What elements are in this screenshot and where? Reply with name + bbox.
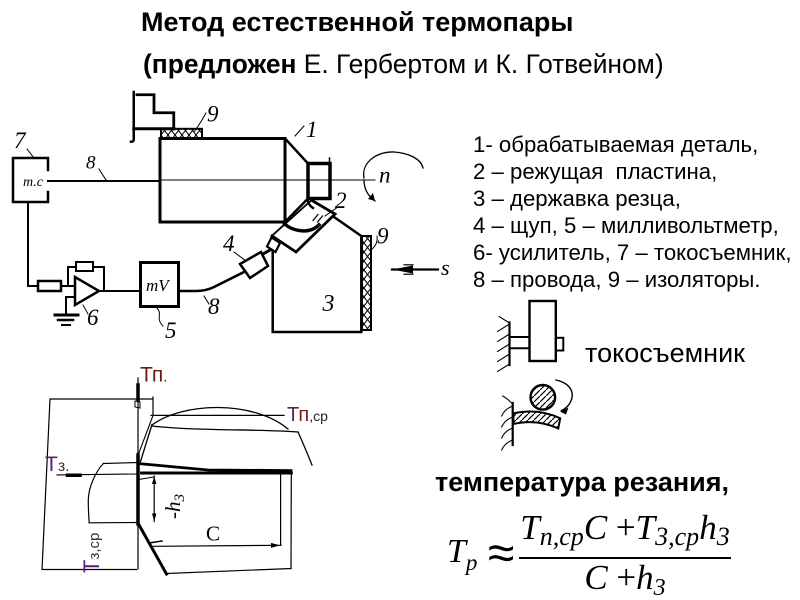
svg-text:2: 2	[335, 188, 347, 213]
svg-text:1: 1	[306, 117, 318, 142]
svg-text:9: 9	[207, 102, 219, 127]
svg-text:-h3: -h3	[161, 494, 188, 519]
svg-text:mV: mV	[146, 276, 171, 295]
svg-text:8: 8	[208, 294, 220, 319]
svg-text:s: s	[441, 255, 450, 280]
svg-text:т.с: т.с	[23, 175, 44, 190]
svg-text:C: C	[206, 522, 220, 546]
svg-text:Тп,ср: Тп,ср	[287, 404, 328, 426]
svg-text:9: 9	[377, 224, 389, 249]
svg-text:8: 8	[86, 153, 96, 174]
svg-text:Тп.: Тп.	[140, 364, 167, 387]
svg-text:5: 5	[165, 318, 177, 343]
svg-text:n: n	[379, 163, 391, 188]
svg-text:6: 6	[87, 305, 99, 330]
svg-text:7: 7	[14, 128, 27, 153]
svg-text:Тз,ср: Тз,ср	[79, 533, 104, 573]
svg-text:Тз.: Тз.	[45, 453, 70, 476]
svg-text:3: 3	[322, 291, 335, 317]
svg-text:4: 4	[223, 231, 235, 256]
